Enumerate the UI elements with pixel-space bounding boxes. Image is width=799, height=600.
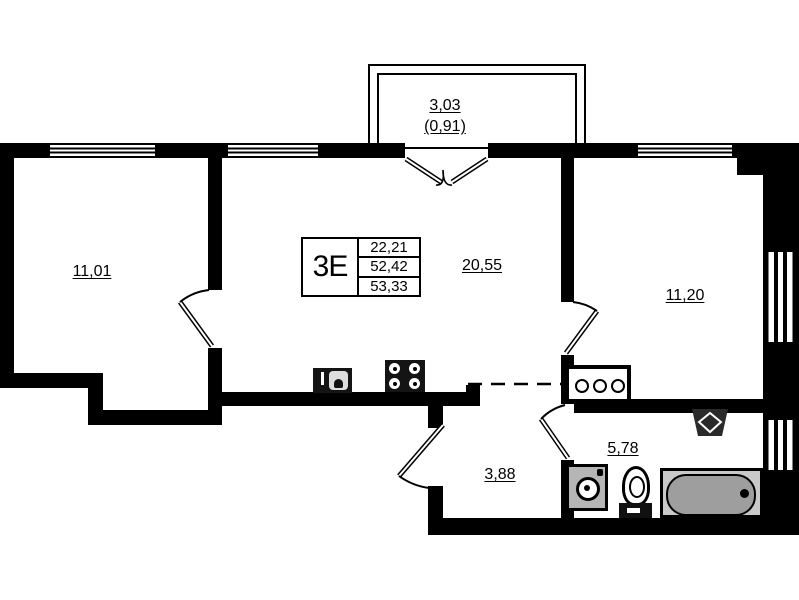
- door-leaf: [180, 302, 212, 346]
- window: [638, 143, 732, 158]
- wall-left: [0, 143, 14, 388]
- room-label-hall: 3,88: [455, 466, 545, 484]
- wall-partition-bedroom-left: [208, 158, 222, 290]
- wall-partition-bedroom-left: [208, 348, 222, 425]
- bath-sink-icon: [699, 413, 721, 432]
- door-leaf: [541, 419, 568, 458]
- room-label-bathroom: 5,78: [578, 440, 668, 458]
- apartment-type-label: 3Е: [303, 239, 359, 295]
- door-leaf: [566, 311, 597, 353]
- apartment-type-box: 3Е 22,21 52,42 53,33: [301, 237, 421, 297]
- washing-machine-icon: [566, 464, 608, 511]
- door-leaf: [180, 302, 212, 346]
- door-leaf: [541, 419, 568, 458]
- toilet-tank-icon: [619, 503, 652, 518]
- kitchen-sink-icon: [313, 368, 352, 393]
- wall-partition-bedroom-right: [561, 158, 574, 302]
- balcony-door-leaf: [452, 159, 487, 182]
- room-label-bedroom-right: 11,20: [640, 287, 730, 305]
- entrance-door-leaf: [399, 425, 443, 476]
- balcony-door-curl: [436, 170, 452, 185]
- bathtub-icon: [660, 468, 763, 518]
- entrance-door-leaf: [399, 425, 443, 476]
- balcony-area-label: 3,03: [400, 97, 490, 115]
- room-label-living-kitchen: 20,55: [437, 257, 527, 275]
- room-label-bedroom-left: 11,01: [47, 263, 137, 281]
- stove-icon: [385, 360, 425, 392]
- balcony-door-leaf: [406, 159, 441, 182]
- wardrobe-icon: [565, 365, 631, 403]
- wall-endcap: [466, 385, 480, 406]
- balcony-door-leaf: [406, 159, 441, 182]
- total-area-value: 53,33: [359, 276, 419, 295]
- balcony-coefficient-label: (0,91): [400, 118, 490, 136]
- wall-segment: [488, 143, 638, 158]
- window: [50, 143, 155, 158]
- bath-sink-icon: [692, 409, 728, 436]
- door-arc: [541, 405, 565, 419]
- entrance-door-arc: [399, 476, 429, 488]
- window: [764, 420, 797, 470]
- wall-segment: [318, 143, 405, 158]
- toilet-icon: [622, 466, 650, 506]
- wall-segment: [155, 143, 228, 158]
- door-leaf: [566, 311, 597, 353]
- wall-segment: [88, 410, 222, 425]
- floor-plan: 3Е 22,21 52,42 53,33 3,03 (0,91) 11,01 2…: [0, 0, 799, 600]
- wall-bottom: [428, 518, 799, 535]
- wall-hall-jamb: [428, 406, 443, 428]
- window: [228, 143, 318, 158]
- wall-kitchen: [208, 392, 480, 406]
- balcony-door-leaf: [452, 159, 487, 182]
- living-area-value: 22,21: [359, 239, 419, 256]
- window: [764, 252, 797, 342]
- area-value: 52,42: [359, 256, 419, 275]
- door-arc: [573, 302, 597, 311]
- door-arc: [180, 290, 209, 302]
